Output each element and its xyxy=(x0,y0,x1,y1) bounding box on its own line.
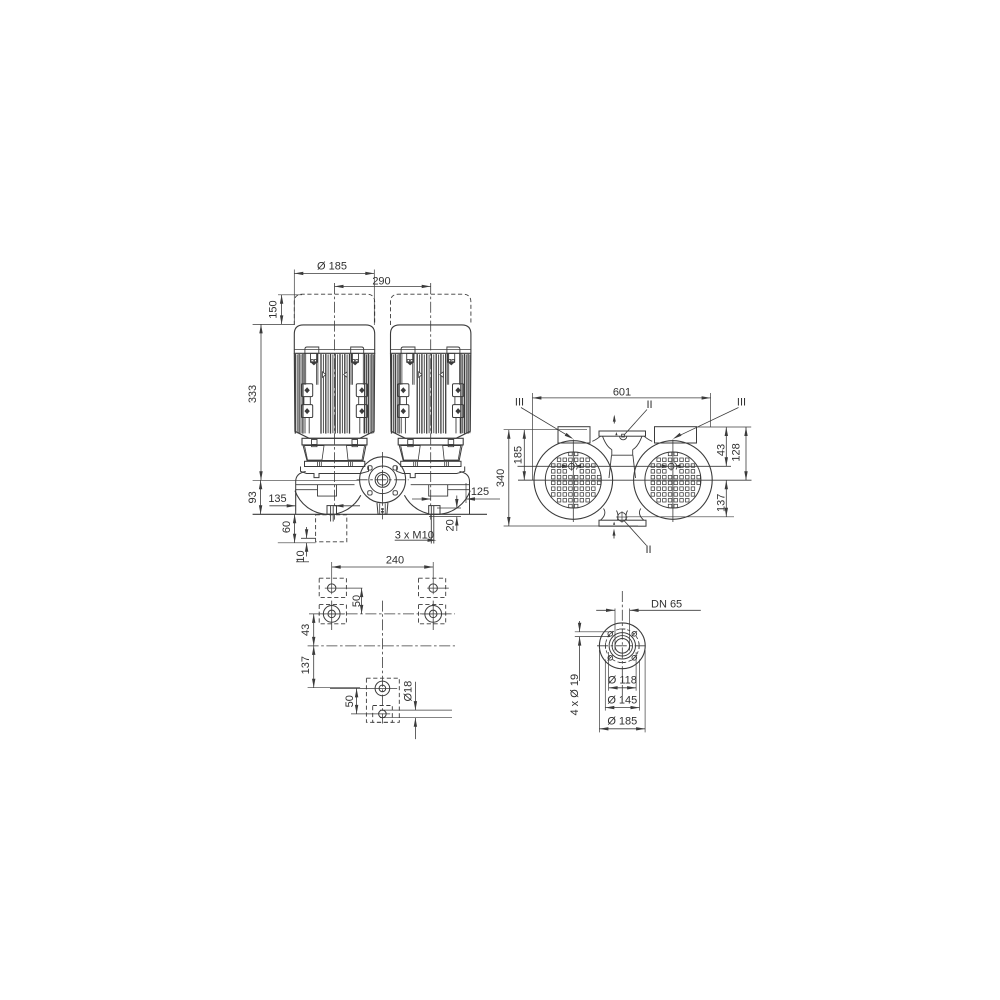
svg-text:185: 185 xyxy=(513,446,525,464)
svg-text:II: II xyxy=(646,399,652,411)
svg-text:333: 333 xyxy=(247,385,259,403)
svg-text:43: 43 xyxy=(300,624,312,636)
svg-text:150: 150 xyxy=(268,300,280,318)
svg-text:DN 65: DN 65 xyxy=(651,598,682,610)
svg-text:128: 128 xyxy=(731,443,743,461)
svg-text:240: 240 xyxy=(386,555,404,567)
svg-text:Ø18: Ø18 xyxy=(403,681,415,702)
svg-text:Ø 185: Ø 185 xyxy=(317,260,347,272)
svg-text:43: 43 xyxy=(716,444,728,456)
svg-text:340: 340 xyxy=(495,469,507,487)
svg-text:137: 137 xyxy=(716,494,728,512)
svg-text:290: 290 xyxy=(372,275,390,287)
svg-text:601: 601 xyxy=(613,387,631,399)
svg-text:125: 125 xyxy=(471,486,489,498)
svg-text:93: 93 xyxy=(247,491,259,503)
svg-text:4 x Ø 19: 4 x Ø 19 xyxy=(569,674,581,716)
svg-text:Ø 118: Ø 118 xyxy=(608,675,637,687)
svg-text:III: III xyxy=(515,397,524,409)
svg-text:50: 50 xyxy=(351,595,363,607)
svg-text:50: 50 xyxy=(344,695,356,707)
svg-text:10: 10 xyxy=(295,550,307,562)
svg-text:20: 20 xyxy=(444,519,456,531)
svg-text:II: II xyxy=(645,544,651,556)
svg-text:137: 137 xyxy=(300,656,312,674)
svg-text:Ø 145: Ø 145 xyxy=(607,694,637,706)
svg-text:Ø 185: Ø 185 xyxy=(607,716,637,728)
svg-text:135: 135 xyxy=(268,493,286,505)
svg-text:60: 60 xyxy=(281,521,293,533)
svg-text:III: III xyxy=(737,397,746,409)
